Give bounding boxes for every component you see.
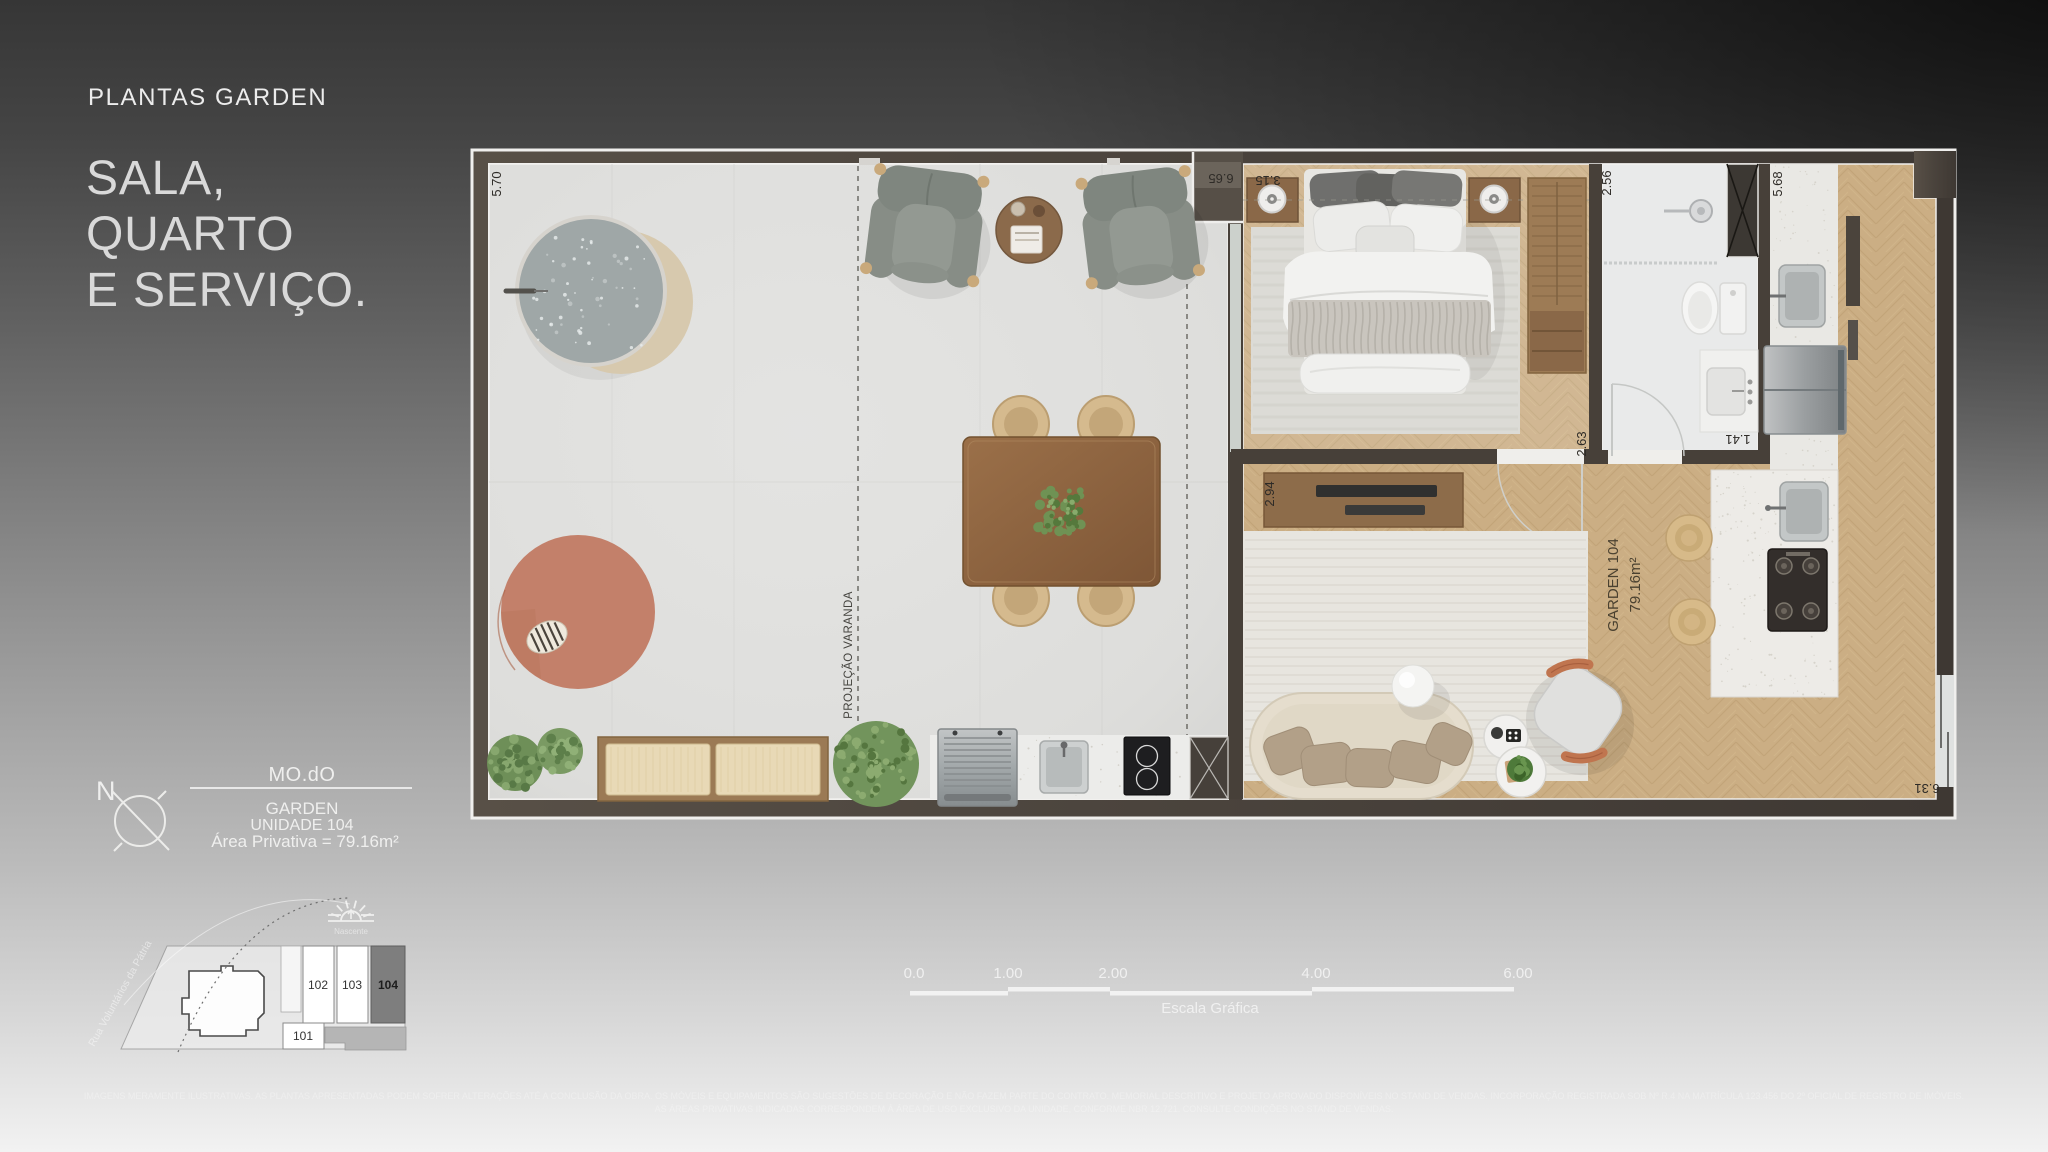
svg-text:IMAGENS MERAMENTE ILUSTRATIVAS: IMAGENS MERAMENTE ILUSTRATIVAS. AS PLANT… — [84, 1091, 1964, 1101]
svg-text:6.00: 6.00 — [1503, 965, 1532, 982]
svg-text:1.41: 1.41 — [1725, 432, 1750, 447]
svg-text:104: 104 — [378, 978, 398, 992]
svg-text:1.00: 1.00 — [993, 965, 1022, 982]
svg-text:79.16m²: 79.16m² — [1627, 557, 1644, 612]
svg-text:4.00: 4.00 — [1301, 965, 1330, 982]
svg-text:6.65: 6.65 — [1208, 171, 1233, 186]
svg-text:103: 103 — [342, 978, 362, 992]
svg-text:5.70: 5.70 — [489, 171, 504, 196]
svg-text:101: 101 — [293, 1029, 313, 1043]
svg-text:2.56: 2.56 — [1599, 170, 1614, 195]
svg-text:MO.dO: MO.dO — [269, 764, 336, 786]
svg-text:PROJEÇÃO VARANDA: PROJEÇÃO VARANDA — [842, 591, 855, 719]
svg-text:0.0: 0.0 — [904, 965, 925, 982]
svg-text:5.68: 5.68 — [1770, 171, 1785, 196]
svg-text:2.00: 2.00 — [1098, 965, 1127, 982]
svg-text:Área Privativa = 79.16m²: Área Privativa = 79.16m² — [211, 832, 399, 851]
svg-text:2.63: 2.63 — [1574, 431, 1589, 456]
svg-text:6.31: 6.31 — [1914, 781, 1939, 796]
svg-text:3.15: 3.15 — [1255, 173, 1280, 188]
svg-text:102: 102 — [308, 978, 328, 992]
svg-text:Nascente: Nascente — [334, 927, 368, 936]
svg-text:GARDEN 104: GARDEN 104 — [1605, 538, 1622, 631]
svg-text:2.94: 2.94 — [1262, 481, 1277, 506]
svg-text:AS ÁREAS PRIVATIVAS INDICADAS: AS ÁREAS PRIVATIVAS INDICADAS CORRESPOND… — [655, 1104, 1394, 1114]
svg-text:Escala Gráfica: Escala Gráfica — [1161, 1000, 1259, 1017]
svg-text:GARDEN: GARDEN — [266, 799, 339, 818]
